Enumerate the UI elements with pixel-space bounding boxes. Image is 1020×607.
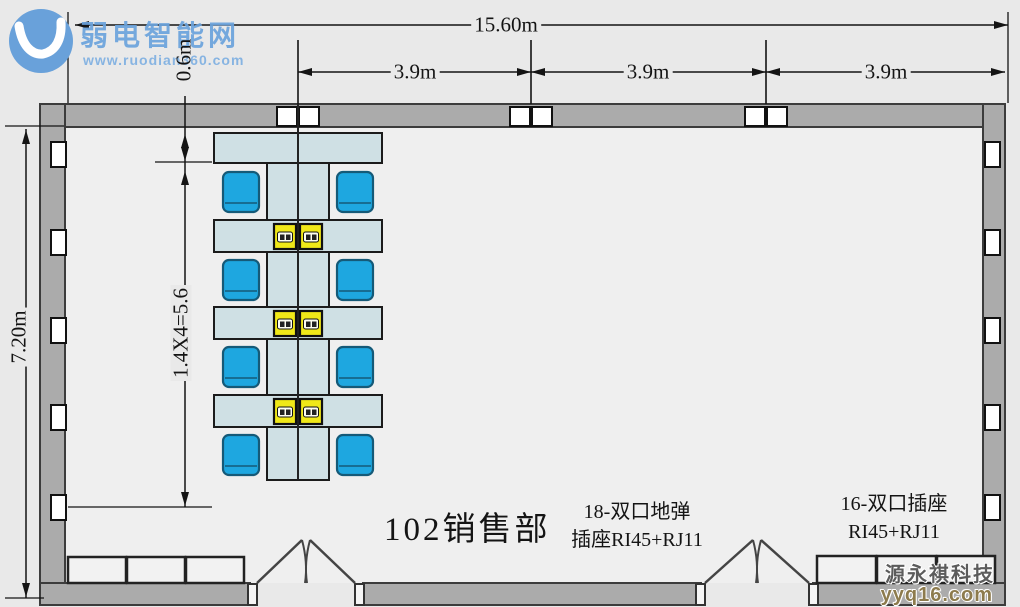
dimension-arrowhead xyxy=(752,68,766,76)
chair xyxy=(223,260,259,300)
wall-socket-box xyxy=(299,107,319,126)
dimension-arrowhead xyxy=(531,68,545,76)
wall xyxy=(40,104,65,605)
site-url: www.ruodian360.com xyxy=(83,52,244,68)
wall-socket-box xyxy=(277,107,297,126)
dimension-arrowhead xyxy=(298,68,312,76)
dim-bay-2: 3.9m xyxy=(624,62,673,83)
chair xyxy=(337,260,373,300)
dimension-arrowhead xyxy=(517,68,531,76)
floor-socket-port xyxy=(306,410,311,416)
dimension-arrowhead xyxy=(766,68,780,76)
wall xyxy=(363,583,701,605)
floor-socket-port xyxy=(306,322,311,328)
wall-socket-box xyxy=(51,230,66,255)
dim-desk-depth: 0.6m xyxy=(174,36,195,85)
room-label: 102销售部 xyxy=(384,502,551,550)
wall-socket-box xyxy=(51,495,66,520)
wall-socket-box xyxy=(510,107,530,126)
wall-socket-box xyxy=(985,142,1000,167)
wall-socket-annotation: 16-双口插座 RI45+RJ11 xyxy=(816,490,972,546)
cabinet xyxy=(817,556,876,583)
chair xyxy=(337,172,373,212)
chair xyxy=(223,347,259,387)
wall-socket-box xyxy=(985,495,1000,520)
site-logo xyxy=(6,6,76,81)
floor-socket-port xyxy=(286,410,291,416)
floor-socket-port xyxy=(312,235,317,241)
wall-socket-box xyxy=(767,107,787,126)
floorplan-canvas: 弱电智能网 www.ruodian360.com 15.60m 3.9m 3.9… xyxy=(0,0,1020,607)
wall-socket-box xyxy=(51,318,66,343)
cabinet xyxy=(68,557,126,583)
dim-bay-3: 3.9m xyxy=(862,62,911,83)
dimension-arrowhead xyxy=(22,130,30,144)
site-logo-icon xyxy=(6,6,76,76)
watermark-url: yyq16.com xyxy=(881,585,993,605)
cabinet xyxy=(127,557,185,583)
floor-socket-annotation-line2: 插座RI45+RJ11 xyxy=(556,526,718,554)
dimension-arrowhead xyxy=(22,583,30,597)
wall-socket-box xyxy=(51,405,66,430)
watermark-company: 源永祺科技 xyxy=(885,565,995,585)
wall-socket-annotation-line1: 16-双口插座 xyxy=(816,490,972,518)
wall-socket-box xyxy=(985,405,1000,430)
dim-bay-1: 3.9m xyxy=(391,62,440,83)
floor-socket-port xyxy=(280,235,285,241)
floor-socket-annotation-line1: 18-双口地弹 xyxy=(556,498,718,526)
dimension-arrowhead xyxy=(994,21,1008,29)
door-post xyxy=(248,584,257,605)
dim-row-pitch: 1.4X4=5.6 xyxy=(171,285,192,381)
floor-socket-port xyxy=(306,235,311,241)
floor-socket-port xyxy=(312,410,317,416)
floor-socket-port xyxy=(286,235,291,241)
floor-socket-annotation: 18-双口地弹 插座RI45+RJ11 xyxy=(556,498,718,554)
wall-socket-box xyxy=(51,142,66,167)
chair xyxy=(337,435,373,475)
wall-socket-box xyxy=(532,107,552,126)
floor-socket-port xyxy=(280,322,285,328)
wall xyxy=(40,583,250,605)
chair xyxy=(223,172,259,212)
wall-socket-box xyxy=(985,318,1000,343)
dimension-arrowhead xyxy=(991,68,1005,76)
wall-socket-box xyxy=(745,107,765,126)
door-post xyxy=(355,584,364,605)
cabinet xyxy=(186,557,244,583)
floor-socket-port xyxy=(280,410,285,416)
wall-socket-box xyxy=(985,230,1000,255)
dim-total-height: 7.20m xyxy=(9,307,30,366)
wall-socket-annotation-line2: RI45+RJ11 xyxy=(816,518,972,546)
chair xyxy=(337,347,373,387)
door-post xyxy=(696,584,705,605)
dim-total-width: 15.60m xyxy=(471,15,541,36)
chair xyxy=(223,435,259,475)
wall xyxy=(983,104,1005,605)
door-post xyxy=(809,584,818,605)
floor-socket-port xyxy=(312,322,317,328)
floor-socket-port xyxy=(286,322,291,328)
site-name: 弱电智能网 xyxy=(80,14,240,54)
